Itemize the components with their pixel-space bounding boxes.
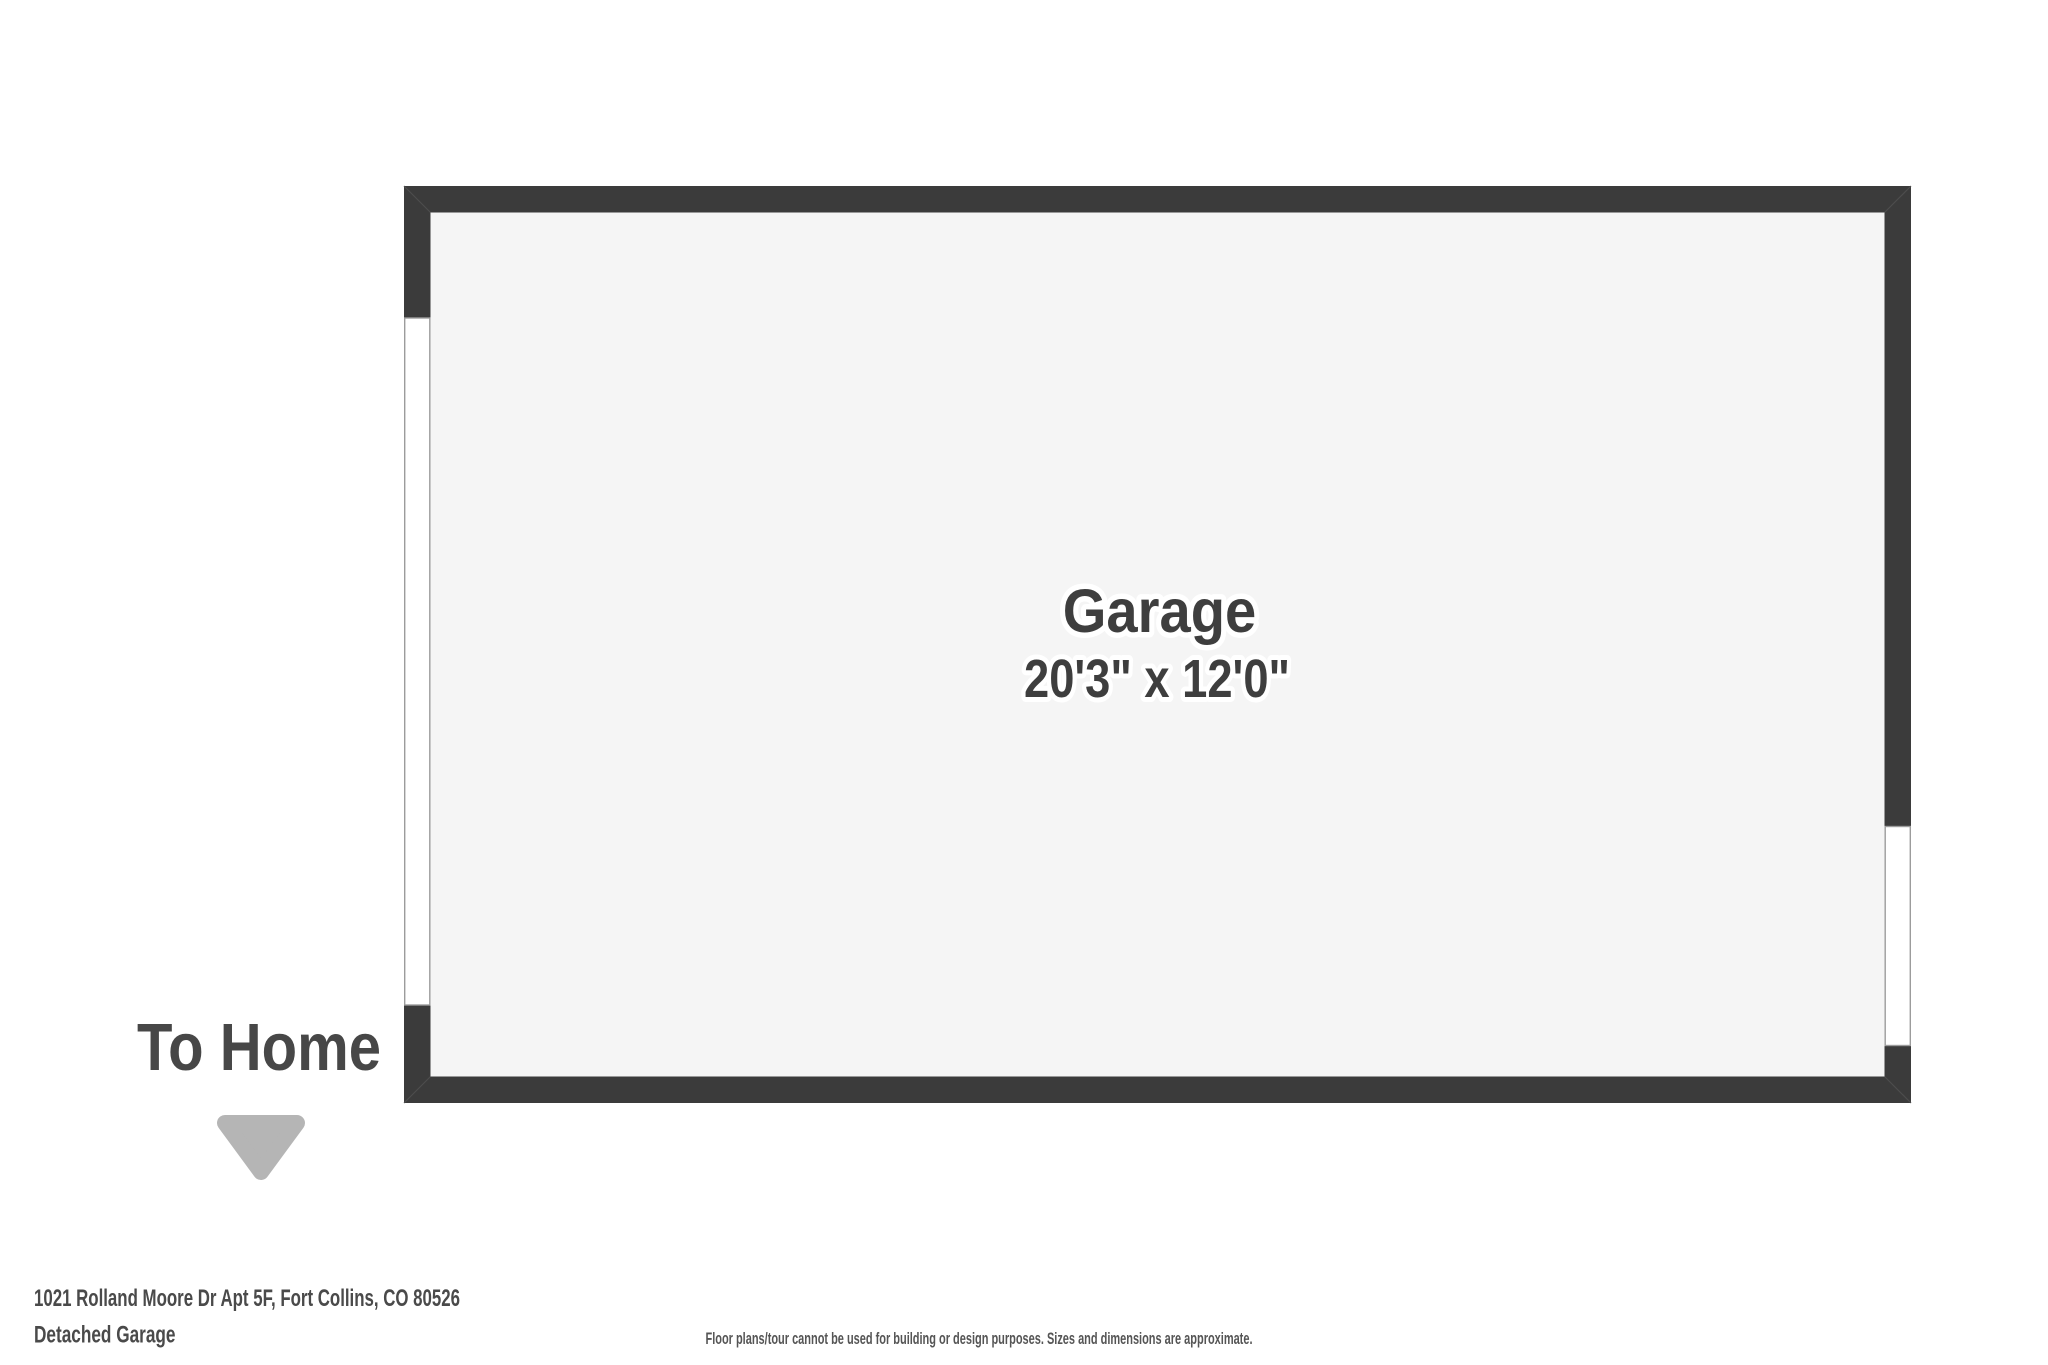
svg-text:Floor plans/tour cannot be use: Floor plans/tour cannot be used for buil… (706, 1330, 1253, 1348)
svg-text:To Home: To Home (137, 1010, 381, 1085)
svg-text:Detached Garage: Detached Garage (34, 1322, 176, 1349)
svg-text:20'3" x 12'0": 20'3" x 12'0" (1024, 649, 1290, 709)
svg-text:1021 Rolland Moore Dr Apt 5F,: 1021 Rolland Moore Dr Apt 5F, Fort Colli… (34, 1285, 460, 1312)
svg-text:Garage: Garage (1063, 577, 1257, 645)
